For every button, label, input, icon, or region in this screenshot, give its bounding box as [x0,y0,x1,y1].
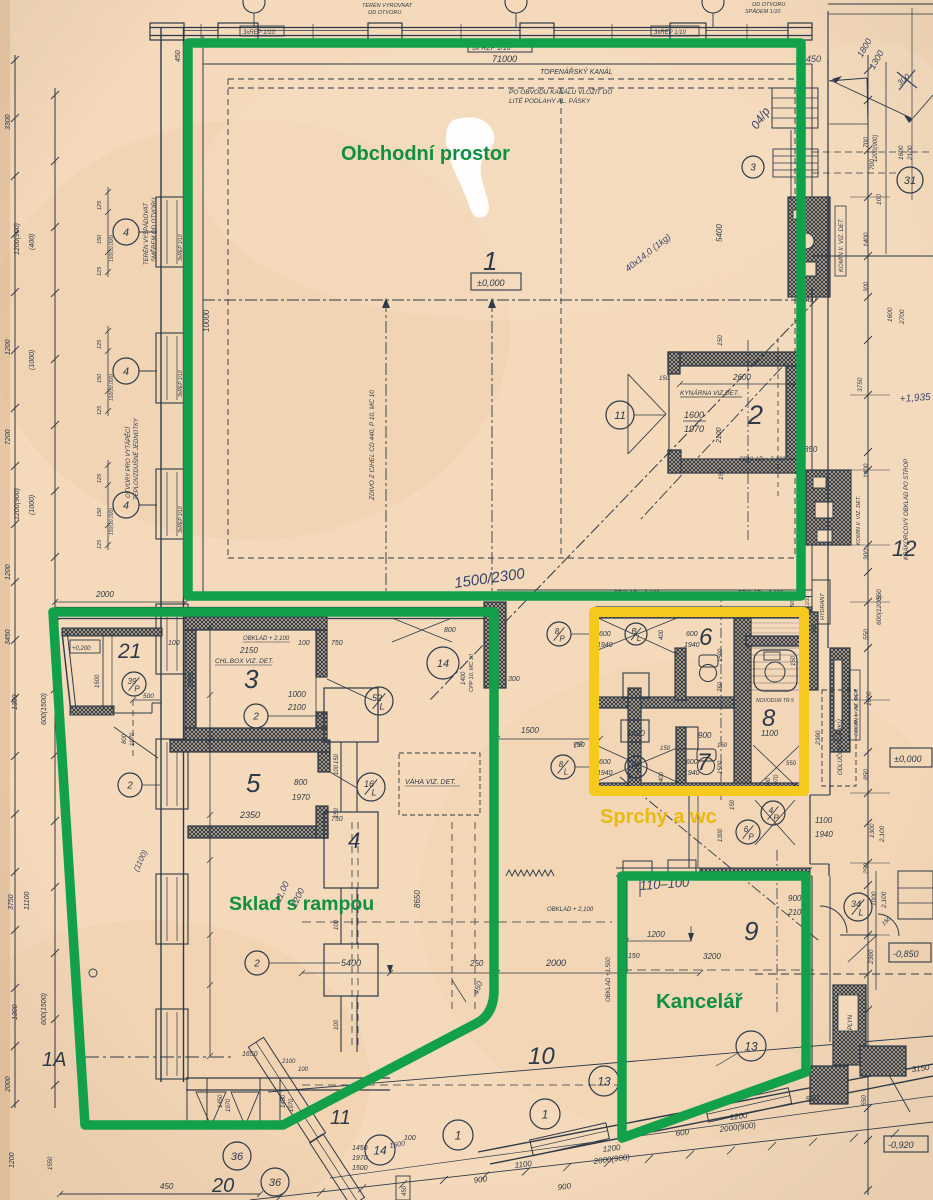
svg-text:1300: 1300 [12,1004,19,1020]
svg-text:2000: 2000 [95,590,114,599]
svg-text:600: 600 [686,759,698,766]
svg-text:1970: 1970 [292,793,310,802]
svg-text:LITÉ PODLAHY AL. PÁSKY: LITÉ PODLAHY AL. PÁSKY [509,96,591,105]
svg-text:9: 9 [744,916,758,946]
svg-text:20: 20 [211,1175,234,1197]
svg-text:L: L [858,908,863,918]
svg-text:Sprchy a wc: Sprchy a wc [600,806,717,828]
svg-text:1300: 1300 [718,828,724,842]
svg-text:-0,920: -0,920 [888,1140,914,1150]
svg-text:125: 125 [97,266,103,276]
svg-text:750: 750 [331,640,343,647]
svg-text:Kancelář: Kancelář [656,990,743,1013]
svg-text:450: 450 [806,54,821,64]
svg-text:600: 600 [675,1127,690,1138]
svg-text:1400: 1400 [863,463,870,478]
svg-text:1100: 1100 [761,729,779,738]
svg-text:1450: 1450 [218,1094,224,1108]
svg-text:3450: 3450 [5,629,12,645]
svg-text:1400: 1400 [627,729,645,738]
svg-text:150: 150 [628,953,640,960]
svg-text:700: 700 [863,137,870,148]
svg-text:1: 1 [455,1128,462,1142]
svg-text:(1000): (1000) [29,495,36,515]
svg-text:PLYN: PLYN [848,1014,854,1030]
svg-text:450: 450 [402,1185,408,1196]
svg-text:300: 300 [508,676,520,683]
svg-text:3750: 3750 [8,894,15,910]
svg-text:VÁHA VIZ. DET.: VÁHA VIZ. DET. [405,777,456,786]
svg-text:250: 250 [863,863,870,875]
svg-text:14: 14 [373,1143,387,1157]
svg-text:5400: 5400 [341,958,361,968]
svg-text:L: L [564,767,568,776]
svg-text:P: P [134,684,140,693]
svg-text:36: 36 [269,1177,282,1189]
svg-text:TERÉN VYSPÁDOVAT: TERÉN VYSPÁDOVAT [143,202,150,265]
svg-text:OTVORY PRO VYTÁPĚCÍ: OTVORY PRO VYTÁPĚCÍ [124,426,132,498]
svg-text:2100: 2100 [281,1059,296,1065]
svg-text:1450: 1450 [352,1145,368,1152]
svg-text:100: 100 [334,764,340,775]
svg-text:600: 600 [599,759,611,766]
svg-text:550: 550 [805,1093,820,1104]
svg-text:P: P [748,832,754,841]
svg-text:1200: 1200 [5,564,12,580]
svg-text:3xREP 1/10: 3xREP 1/10 [178,234,184,261]
svg-text:1200(900): 1200(900) [14,223,21,255]
svg-text:Obchodní prostor: Obchodní prostor [341,143,510,165]
svg-text:1600: 1600 [887,307,894,322]
svg-text:125: 125 [97,473,103,483]
svg-text:1300: 1300 [12,694,19,710]
svg-text:4: 4 [123,500,129,512]
svg-text:OD OTVORU: OD OTVORU [752,2,785,8]
svg-text:10: 10 [528,1043,555,1070]
svg-text:150(10,000): 150(10,000) [109,235,115,262]
svg-text:3750: 3750 [857,377,864,392]
svg-text:600(1500): 600(1500) [41,993,48,1025]
svg-text:100: 100 [334,919,340,930]
svg-text:100: 100 [298,640,310,647]
svg-text:800: 800 [444,627,456,634]
svg-text:2360: 2360 [815,730,822,746]
svg-text:11100: 11100 [24,891,31,910]
svg-text:12: 12 [892,536,916,561]
svg-text:1970: 1970 [684,424,704,434]
svg-text:OBKLAD + 2,100: OBKLAD + 2,100 [739,457,786,463]
svg-text:400: 400 [659,771,665,782]
svg-text:21: 21 [117,640,141,663]
svg-text:5: 5 [246,768,261,798]
svg-text:1300: 1300 [869,823,876,838]
svg-text:3xREP 1/10: 3xREP 1/10 [654,30,686,36]
svg-text:4: 4 [123,366,129,378]
svg-text:100: 100 [168,640,180,647]
svg-text:2: 2 [747,400,763,430]
svg-text:+0,200: +0,200 [72,646,91,652]
svg-text:2350: 2350 [239,810,260,820]
svg-text:(1000): (1000) [29,350,36,370]
svg-text:2150: 2150 [239,646,258,655]
svg-text:1970: 1970 [774,774,780,788]
svg-text:31: 31 [904,175,916,187]
svg-text:1940: 1940 [597,770,613,777]
svg-text:2100: 2100 [716,427,723,444]
svg-text:300: 300 [864,281,870,292]
svg-text:1600: 1600 [866,691,873,706]
svg-text:125: 125 [97,405,103,415]
svg-text:550: 550 [863,629,870,640]
svg-text:500: 500 [143,693,154,700]
svg-text:1200(900): 1200(900) [873,135,879,162]
svg-text:5400: 5400 [715,224,724,242]
svg-text:1600: 1600 [684,410,704,420]
svg-text:2,100: 2,100 [879,825,886,843]
svg-text:2100: 2100 [287,703,306,712]
svg-text:3200: 3200 [703,952,721,961]
svg-text:2100: 2100 [907,145,914,161]
svg-text:36: 36 [231,1151,244,1163]
svg-text:400: 400 [659,629,665,640]
svg-text:1550: 1550 [48,1156,54,1170]
svg-text:600(1500): 600(1500) [41,693,48,725]
svg-text:1940: 1940 [684,770,700,777]
svg-text:2360: 2360 [868,949,875,965]
svg-text:71000: 71000 [492,54,517,64]
svg-text:150: 150 [334,807,340,818]
svg-text:150: 150 [718,469,725,480]
svg-text:L: L [379,702,384,712]
svg-text:1200(900): 1200(900) [14,488,21,520]
svg-text:OBKLAD + 2,100: OBKLAD + 2,100 [547,907,594,913]
svg-text:OD OTVORU: OD OTVORU [368,10,401,16]
svg-text:125: 125 [97,200,103,210]
svg-text:125: 125 [97,339,103,349]
svg-text:600(1200): 600(1200) [876,595,883,625]
svg-text:100: 100 [334,1019,340,1030]
svg-text:1940: 1940 [815,830,833,839]
svg-text:150: 150 [659,376,670,382]
svg-text:900: 900 [473,1174,488,1185]
svg-text:Sklad s rampou: Sklad s rampou [229,893,374,915]
svg-text:+1,935: +1,935 [899,392,931,405]
svg-text:OBKLAD +1,500: OBKLAD +1,500 [606,957,612,1002]
svg-text:HYDRANT: HYDRANT [820,593,826,620]
svg-text:1200: 1200 [647,930,665,939]
svg-text:ZDIVO Z CIHEL CD 440, P 10, MC: ZDIVO Z CIHEL CD 440, P 10, MC 10 [369,390,376,501]
svg-text:3xREP 1/10: 3xREP 1/10 [178,370,184,397]
svg-text:1200: 1200 [5,339,12,355]
svg-text:100: 100 [298,1067,309,1073]
svg-text:13: 13 [597,1074,611,1088]
svg-text:P: P [636,767,642,776]
svg-text:150: 150 [717,743,728,749]
svg-text:KOMÍN II. VIZ. DET.: KOMÍN II. VIZ. DET. [838,218,845,272]
svg-text:100: 100 [404,1135,416,1142]
svg-text:150: 150 [97,373,103,383]
svg-text:8650: 8650 [413,890,422,908]
svg-text:1500: 1500 [95,674,101,688]
svg-text:KOMÍN II. VIZ. DET.: KOMÍN II. VIZ. DET. [855,496,862,545]
svg-text:1: 1 [542,1107,549,1121]
svg-text:600: 600 [599,631,611,638]
svg-text:4: 4 [123,227,129,239]
svg-text:(400): (400) [29,234,36,250]
svg-text:2000: 2000 [188,672,195,689]
svg-text:850: 850 [804,445,818,454]
svg-text:3300: 3300 [5,114,12,130]
svg-text:1000: 1000 [288,690,306,699]
svg-text:900: 900 [557,1181,572,1192]
svg-text:14: 14 [437,658,449,670]
svg-text:L: L [371,788,376,798]
svg-text:100: 100 [876,194,883,205]
svg-text:13: 13 [744,1039,758,1053]
svg-text:150: 150 [717,335,724,346]
svg-text:800: 800 [294,778,308,787]
svg-text:300: 300 [863,549,870,560]
svg-text:SPÁDEM 1/10: SPÁDEM 1/10 [745,8,781,15]
svg-text:10000: 10000 [202,309,211,332]
svg-text:3xREP 1/10: 3xREP 1/10 [243,30,275,36]
svg-text:TEPLOVZDUŠNÉ JEDNOTKY: TEPLOVZDUŠNÉ JEDNOTKY [133,417,140,500]
svg-text:450: 450 [812,623,818,634]
svg-text:CPP 10, MC 10: CPP 10, MC 10 [469,653,475,692]
svg-text:1200: 1200 [9,1152,16,1168]
svg-text:550: 550 [786,761,797,767]
svg-text:700: 700 [869,159,876,170]
svg-text:OBKLAD + 2,100: OBKLAD + 2,100 [243,636,290,642]
svg-text:850: 850 [863,769,870,780]
svg-text:ODLUČOVAČ TUKŮ: ODLUČOVAČ TUKŮ [836,719,844,775]
svg-text:KOMÍN I. VIZ. DET.: KOMÍN I. VIZ. DET. [853,688,860,736]
svg-text:2: 2 [252,712,259,723]
svg-text:±0,000: ±0,000 [477,278,504,288]
svg-text:2: 2 [253,959,260,970]
svg-text:2000: 2000 [5,1076,12,1093]
svg-text:1970: 1970 [226,1098,232,1112]
svg-text:6: 6 [699,624,713,651]
svg-text:450: 450 [160,1182,174,1191]
svg-text:3: 3 [244,664,259,694]
svg-text:7200: 7200 [5,429,12,445]
svg-text:1: 1 [483,246,497,276]
svg-text:3xREP 1/10: 3xREP 1/10 [178,506,184,533]
svg-text:150: 150 [791,655,797,666]
svg-text:TERÉN VYROVNAT: TERÉN VYROVNAT [362,2,413,9]
svg-text:150: 150 [97,507,103,517]
svg-text:150(10,000): 150(10,000) [109,508,115,535]
svg-text:11: 11 [614,410,625,422]
svg-text:1500: 1500 [521,726,539,735]
svg-text:2700: 2700 [899,309,906,325]
svg-text:2: 2 [126,781,133,792]
svg-text:TOPENÁŘSKÝ KANÁL: TOPENÁŘSKÝ KANÁL [540,67,613,76]
svg-text:550: 550 [861,1095,868,1106]
svg-text:11: 11 [330,1107,351,1129]
svg-text:±0,000: ±0,000 [894,754,921,764]
svg-text:1970: 1970 [352,1155,368,1162]
svg-text:250: 250 [469,959,484,968]
svg-text:150: 150 [660,746,671,752]
svg-text:900: 900 [788,894,802,903]
svg-text:150(10,000): 150(10,000) [109,374,115,401]
svg-text:1600: 1600 [898,145,905,160]
svg-text:3: 3 [750,163,756,174]
svg-text:SMĚREM OD OTVORU: SMĚREM OD OTVORU [150,197,158,262]
svg-text:8: 8 [762,705,776,732]
svg-text:150: 150 [334,753,340,764]
svg-text:2000: 2000 [545,958,566,968]
svg-text:-0,850: -0,850 [893,949,919,959]
svg-text:1940: 1940 [597,642,613,649]
svg-text:L: L [637,634,641,643]
svg-text:1940: 1940 [684,642,700,649]
svg-text:450: 450 [175,50,182,62]
svg-text:1A: 1A [42,1049,66,1071]
svg-text:150: 150 [730,799,736,810]
svg-text:1100: 1100 [815,816,833,825]
svg-text:2,100: 2,100 [881,891,888,909]
svg-text:1970: 1970 [289,1098,295,1112]
svg-text:1400: 1400 [461,671,467,685]
svg-text:NOVODUR TR 5: NOVODUR TR 5 [756,698,794,704]
svg-text:4: 4 [348,828,360,853]
svg-text:P: P [559,634,565,643]
svg-text:1500: 1500 [352,1165,368,1172]
svg-text:1400: 1400 [863,232,870,247]
svg-text:600: 600 [686,631,698,638]
svg-text:150: 150 [97,234,103,244]
svg-text:900: 900 [698,731,712,740]
svg-text:125: 125 [97,539,103,549]
